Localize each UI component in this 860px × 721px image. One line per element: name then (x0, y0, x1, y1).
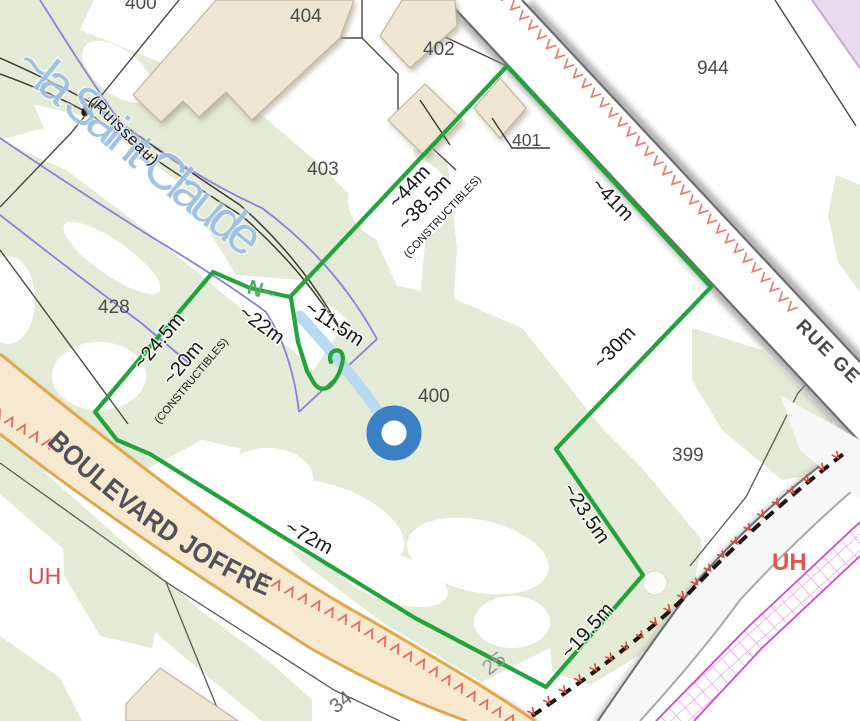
svg-text:400: 400 (125, 0, 157, 14)
svg-text:944: 944 (697, 58, 729, 79)
svg-text:404: 404 (290, 6, 322, 27)
svg-text:399: 399 (672, 445, 704, 466)
svg-text:403: 403 (307, 159, 339, 180)
svg-text:UH: UH (772, 549, 807, 576)
svg-text:428: 428 (98, 297, 130, 318)
svg-text:400: 400 (418, 386, 450, 407)
svg-text:401: 401 (512, 130, 541, 150)
svg-text:402: 402 (423, 39, 455, 60)
svg-text:UH: UH (28, 563, 61, 589)
